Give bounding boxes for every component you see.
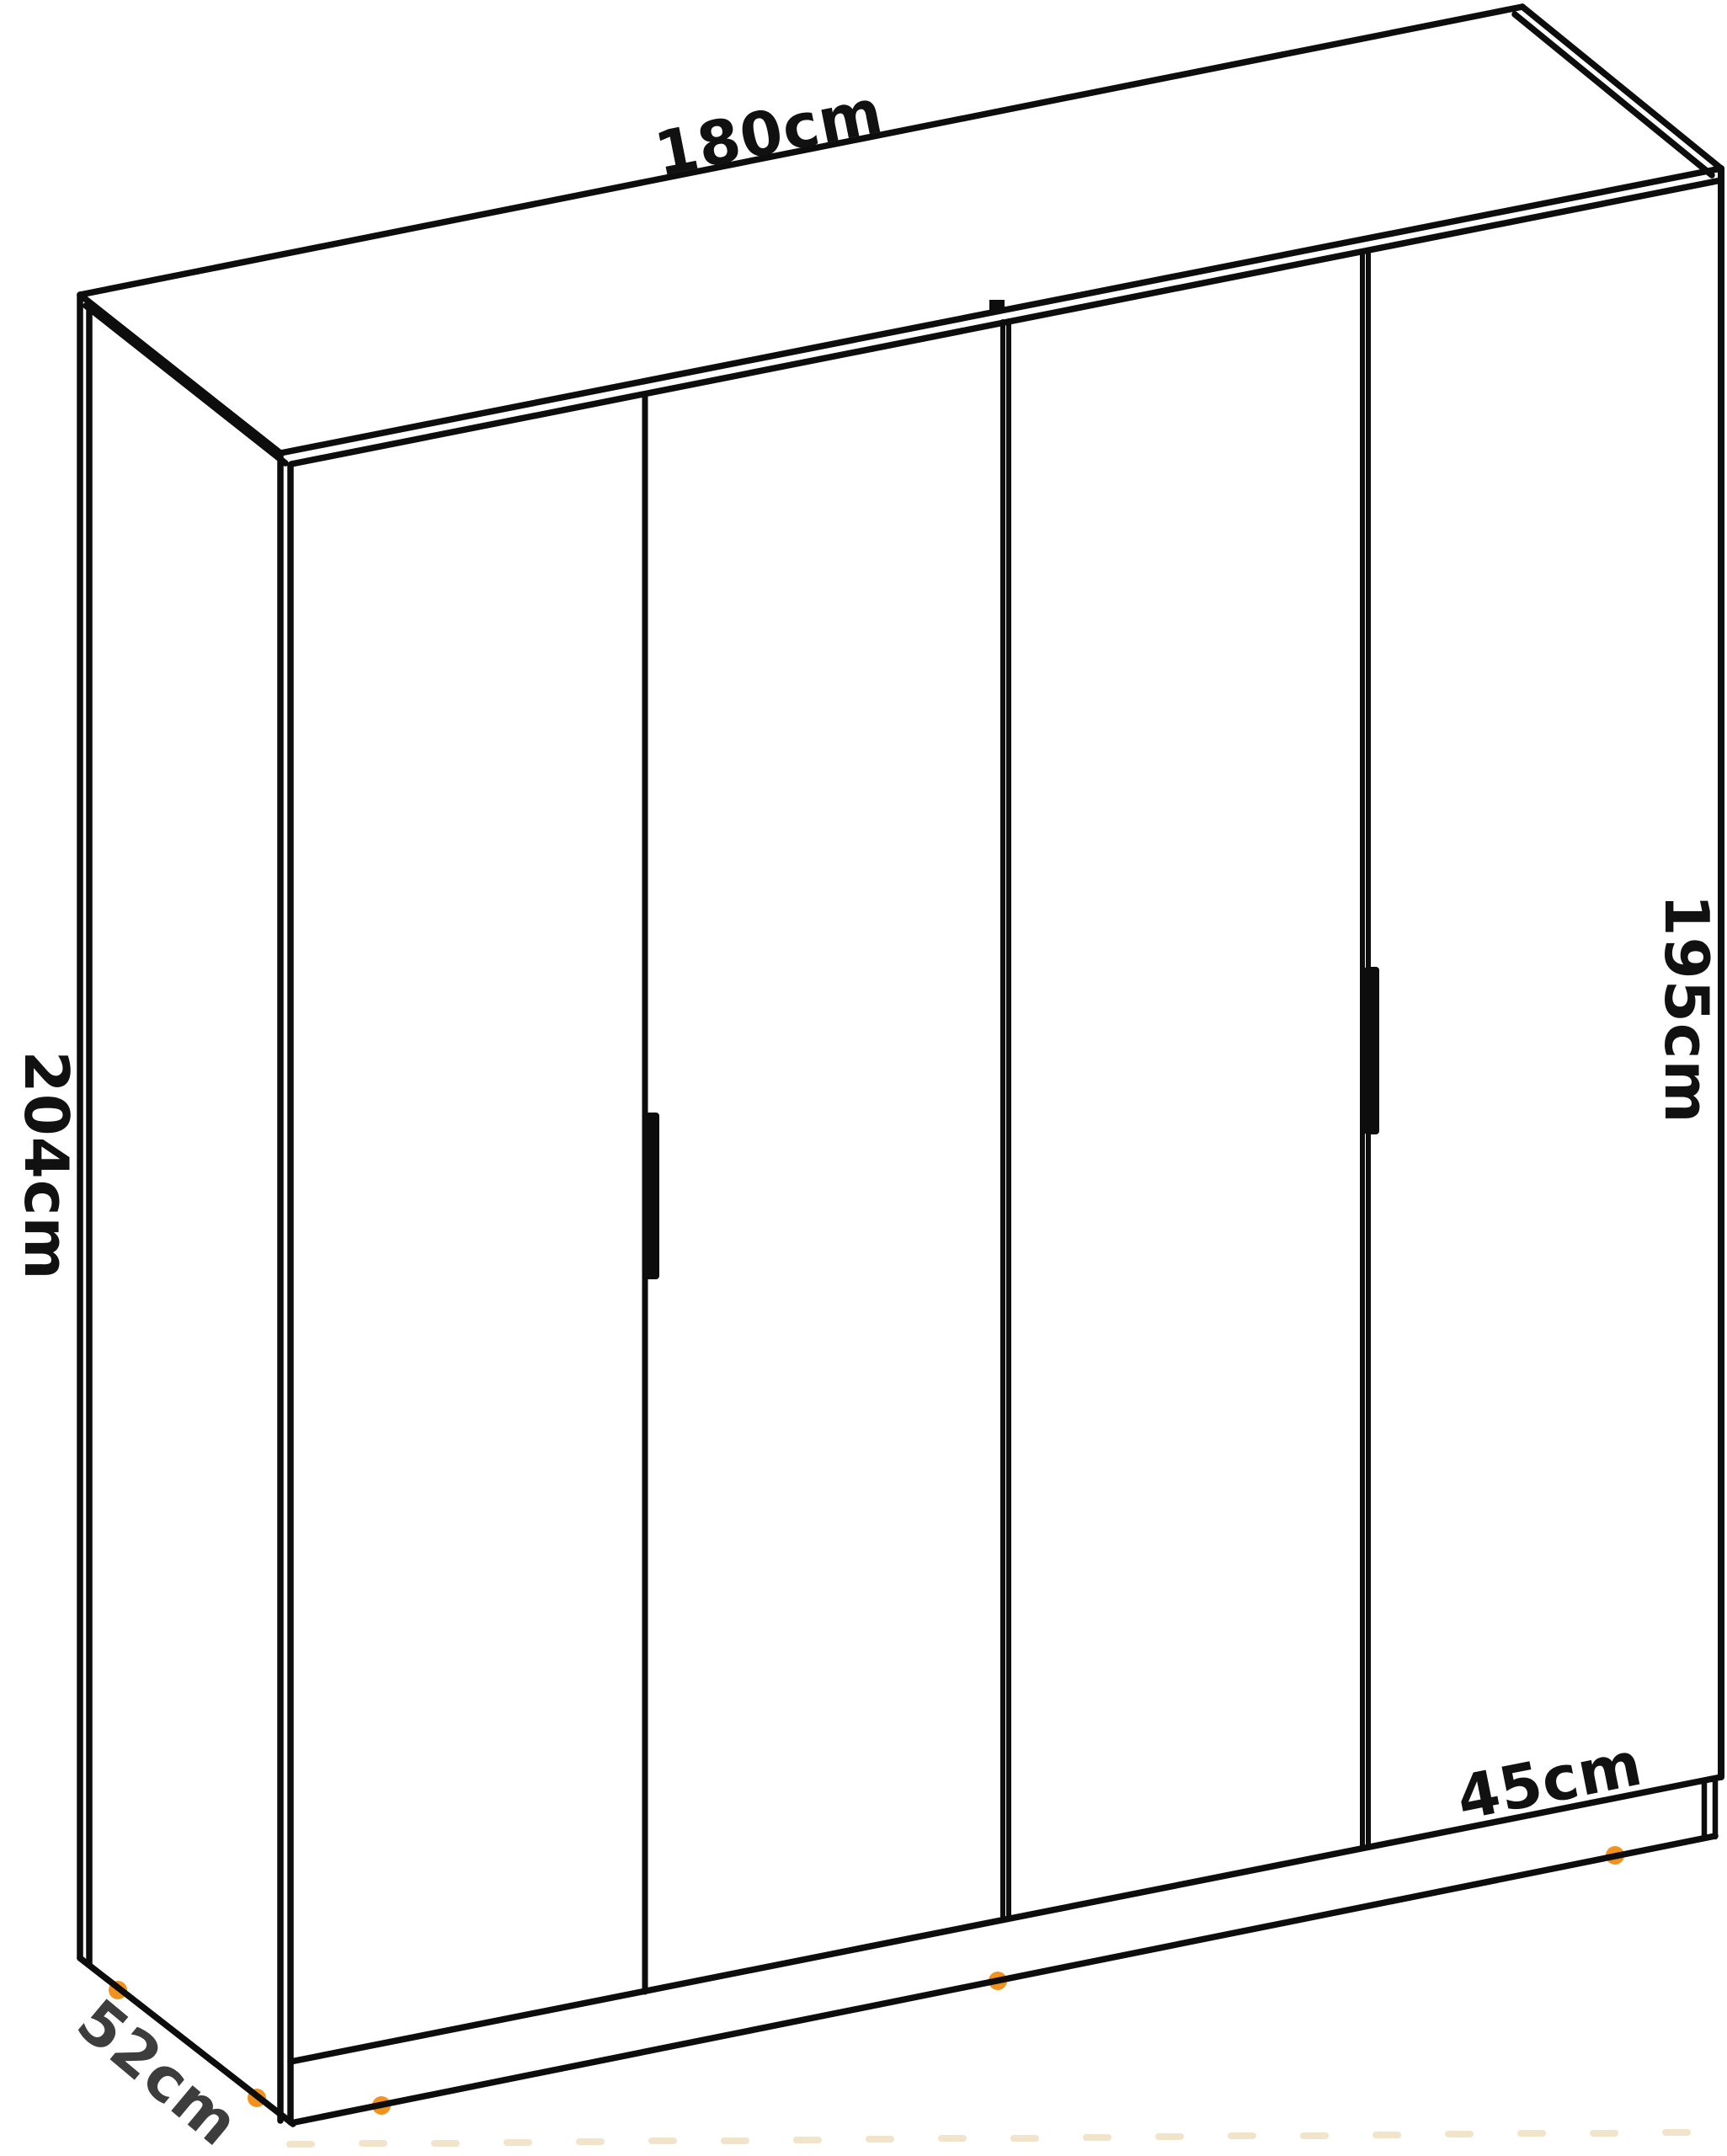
floor-mark: [431, 2140, 460, 2147]
door-handle-left: [644, 1113, 659, 1279]
floor-mark: [866, 2136, 894, 2143]
floor-mark: [1445, 2131, 1474, 2137]
top-right-edge-inner: [1515, 14, 1712, 175]
floor-mark: [793, 2137, 822, 2143]
floor-mark: [1300, 2132, 1329, 2139]
floor-mark: [576, 2138, 605, 2145]
top-right-edge-outer: [1522, 7, 1721, 168]
floor-mark: [1662, 2129, 1691, 2136]
floor-mark: [1373, 2132, 1401, 2138]
dimension-label-width: 180cm: [649, 76, 888, 190]
dimension-label-height-total: 204cm: [11, 1051, 82, 1281]
dimension-label-door-width: 45cm: [1451, 1728, 1648, 1834]
floor-mark: [1155, 2133, 1184, 2140]
floor-mark: [1590, 2130, 1618, 2137]
door-gap-2-top-nub: [989, 300, 1005, 312]
floor-marks: [286, 2129, 1691, 2148]
floor-mark: [1517, 2130, 1546, 2137]
floor-mark: [1083, 2134, 1111, 2141]
door-handles: [644, 967, 1379, 1279]
floor-mark: [286, 2141, 315, 2148]
door-handle-right: [1364, 967, 1379, 1134]
wardrobe-dimension-diagram: 180cm 204cm 195cm 45cm 52cm: [0, 0, 1727, 2156]
floor-mark: [648, 2137, 677, 2144]
floor-mark: [721, 2137, 749, 2144]
top-left-edge-outer: [80, 295, 280, 453]
floor-mark: [938, 2135, 967, 2142]
wardrobe-diagram-canvas: 180cm 204cm 195cm 45cm 52cm: [0, 0, 1727, 2156]
dimension-label-height-right: 195cm: [1651, 894, 1722, 1124]
floor-mark: [1010, 2135, 1039, 2142]
wardrobe-feet: [109, 1846, 1624, 2115]
floor-mark: [1228, 2132, 1256, 2139]
top-left-edge-inner: [86, 306, 285, 463]
floor-mark: [504, 2139, 532, 2146]
floor-mark: [359, 2140, 387, 2147]
